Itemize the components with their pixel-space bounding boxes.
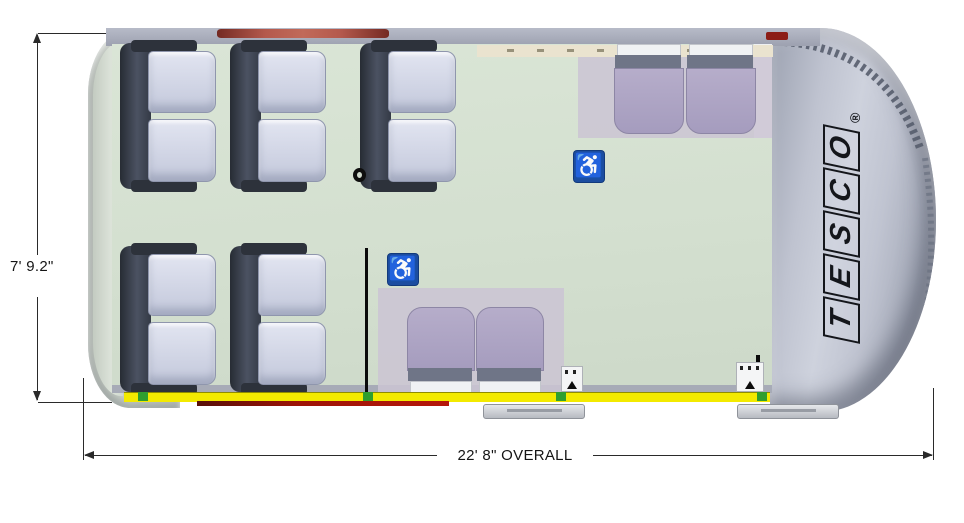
passenger-seat-double-4 (115, 243, 215, 395)
registered-trademark: ® (847, 113, 863, 123)
length-dim-line-left (85, 455, 437, 456)
step-rail-slot (761, 409, 816, 412)
seat-cushion (258, 254, 326, 317)
length-dim-label: 22' 8" OVERALL (437, 447, 593, 464)
flip-seat-pad (686, 68, 756, 134)
passenger-seat-double-3 (355, 40, 455, 192)
seat-back (120, 43, 151, 189)
flip-seat-band (615, 55, 680, 68)
height-dim-line-upper (37, 35, 38, 255)
seat-cushion (388, 119, 456, 182)
passenger-seat-double-1 (115, 40, 215, 192)
height-dim-tick-bottom (38, 402, 112, 403)
height-dim-tick-top (38, 33, 112, 34)
height-dim-label: 7' 9.2" (10, 258, 54, 275)
seat-back (230, 246, 261, 392)
bus-floorplan-diagram: 7' 9.2" 22' 8" OVERALL (0, 0, 964, 523)
logo-letter: T (823, 296, 860, 344)
seat-cushion (258, 119, 326, 182)
tesco-logo: T E S C O ® (819, 90, 863, 340)
seat-cushion (388, 51, 456, 114)
flip-seat-top-1 (614, 44, 682, 132)
wheelchair-icon: ♿ (574, 151, 604, 182)
tiedown-marker-green (138, 392, 148, 401)
flip-seat-pad (476, 307, 544, 371)
height-dim-arrow-bottom (33, 391, 41, 401)
bracket-detail (740, 366, 760, 370)
length-dim-arrow-left (84, 451, 94, 459)
securement-bracket (561, 366, 583, 392)
flip-seat-bottom-1 (407, 307, 473, 395)
bracket-arrow (567, 381, 577, 389)
seat-cushion (148, 322, 216, 385)
length-dim-line-right (593, 455, 932, 456)
length-dim-arrow-right (923, 451, 933, 459)
seat-cushion (148, 119, 216, 182)
height-dim-arrow-top (33, 33, 41, 43)
height-dim-line-lower (37, 297, 38, 400)
flip-seat-pad (614, 68, 684, 134)
bracket-detail (565, 370, 579, 374)
seat-back (360, 43, 391, 189)
logo-letter: C (823, 167, 860, 215)
wheelchair-icon: ♿ (388, 254, 418, 285)
step-rail-slot (507, 409, 562, 412)
tiedown-marker-green (757, 392, 767, 401)
tiedown-marker-green (363, 392, 373, 401)
securement-bracket (736, 362, 764, 392)
side-door-red-strip (197, 401, 449, 406)
flip-seat-top-2 (686, 44, 754, 132)
logo-letter: O (823, 124, 860, 172)
tiedown-marker-green (556, 392, 566, 401)
roof-red-strip (217, 29, 389, 38)
logo-letter: E (823, 253, 860, 301)
seat-cushion (148, 51, 216, 114)
front-red-marker (766, 32, 788, 40)
logo-letter: S (823, 210, 860, 258)
length-ext-line-left (83, 378, 84, 460)
seat-back (230, 43, 261, 189)
flip-seat-pad (407, 307, 475, 371)
seat-cushion (148, 254, 216, 317)
flip-seat-bottom-2 (476, 307, 542, 395)
bracket-arrow (745, 381, 755, 389)
seat-cushion (258, 51, 326, 114)
passenger-seat-double-2 (225, 40, 325, 192)
seat-cushion (258, 322, 326, 385)
flip-seat-band (477, 368, 540, 381)
step-rail-right (737, 404, 839, 419)
floor-grommet (353, 168, 366, 182)
seat-back (120, 246, 151, 392)
flip-seat-band (408, 368, 471, 381)
passenger-seat-double-5 (225, 243, 325, 395)
step-rail-left (483, 404, 585, 419)
flip-seat-band (687, 55, 752, 68)
partition-stanchion (365, 248, 368, 393)
